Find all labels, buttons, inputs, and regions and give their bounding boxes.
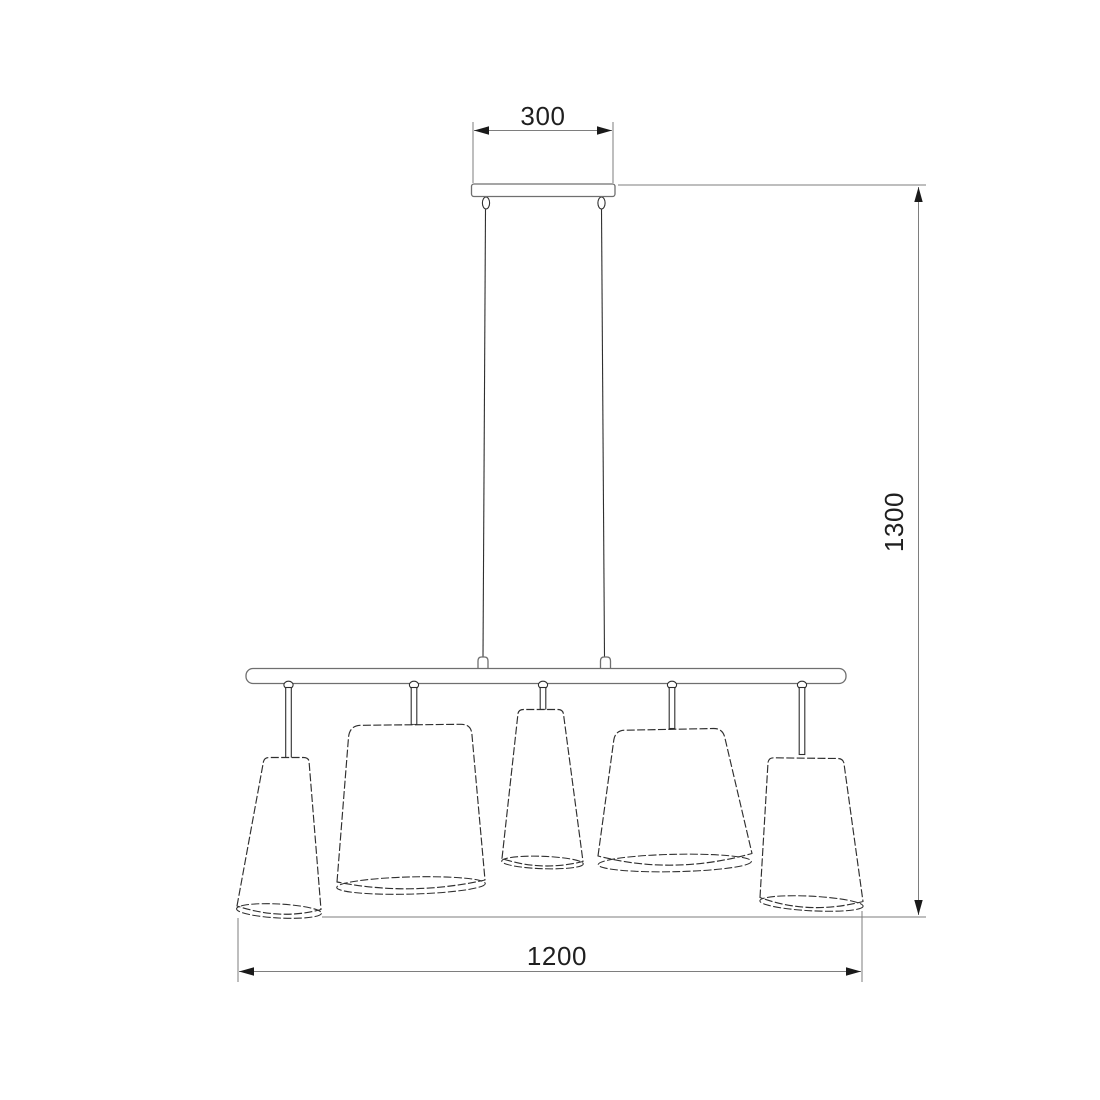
arrow-left-icon — [474, 126, 489, 134]
stem-rod-1 — [286, 688, 292, 759]
lamp-shade-4 — [598, 728, 752, 865]
stem-rod-5 — [799, 688, 805, 755]
suspension-cord-right — [602, 210, 605, 658]
cord-connector-right — [601, 657, 611, 669]
dimension-label-overall-drop: 1300 — [879, 492, 909, 552]
horizontal-support-bar — [246, 669, 846, 684]
lamp-shade-2 — [337, 724, 485, 888]
lamp-shade-5 — [760, 758, 863, 908]
dimension-label-canopy-width: 300 — [520, 101, 565, 131]
stem-rod-3 — [540, 688, 546, 710]
lamp-shade-3 — [502, 710, 583, 866]
stem-rod-2 — [411, 688, 417, 725]
cord-connector-left — [478, 657, 488, 669]
ceiling-canopy-plate — [472, 184, 616, 197]
dimension-label-fixture-length: 1200 — [527, 941, 587, 971]
lamp-shade-1 — [237, 758, 321, 915]
stem-rod-4 — [669, 688, 675, 729]
canopy-cord-ring-left — [482, 197, 489, 209]
drawing-canvas: 300 1300 1200 — [0, 0, 1100, 1100]
arrow-up-icon — [914, 187, 922, 202]
suspension-cord-left — [483, 210, 486, 658]
canopy-cord-ring-right — [598, 197, 605, 209]
arrow-down-icon — [914, 900, 922, 915]
dimension-canopy-width: 300 — [473, 101, 613, 183]
pendant-light-technical-drawing: 300 1300 1200 — [0, 0, 1100, 1100]
arrow-right-icon — [597, 126, 612, 134]
arrow-right-icon — [846, 967, 861, 975]
dimension-fixture-length: 1200 — [238, 911, 862, 982]
arrow-left-icon — [239, 967, 254, 975]
